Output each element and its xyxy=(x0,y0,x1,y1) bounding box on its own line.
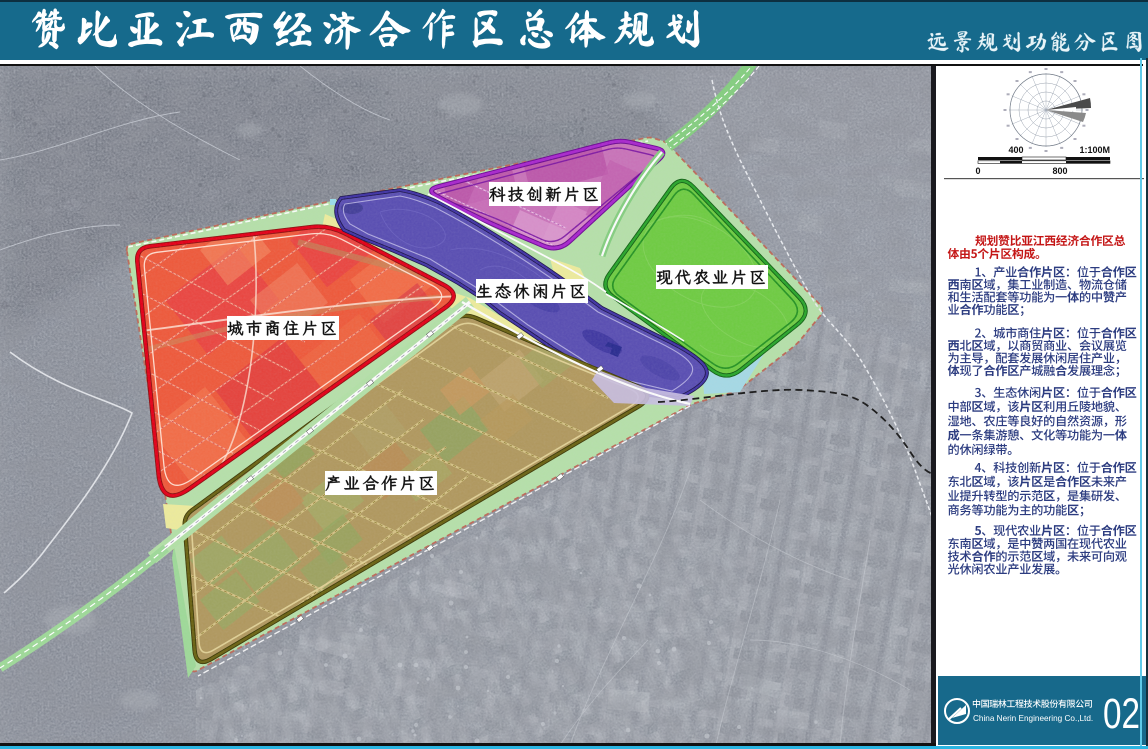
svg-text:02: 02 xyxy=(1103,690,1140,738)
svg-text:0: 0 xyxy=(975,166,980,176)
svg-text:800: 800 xyxy=(1052,166,1067,176)
svg-text:China Nerin Engineering Co.,Lt: China Nerin Engineering Co.,Ltd. xyxy=(973,714,1093,723)
svg-text:400: 400 xyxy=(1008,145,1023,155)
svg-text:1:100M: 1:100M xyxy=(1079,145,1110,155)
